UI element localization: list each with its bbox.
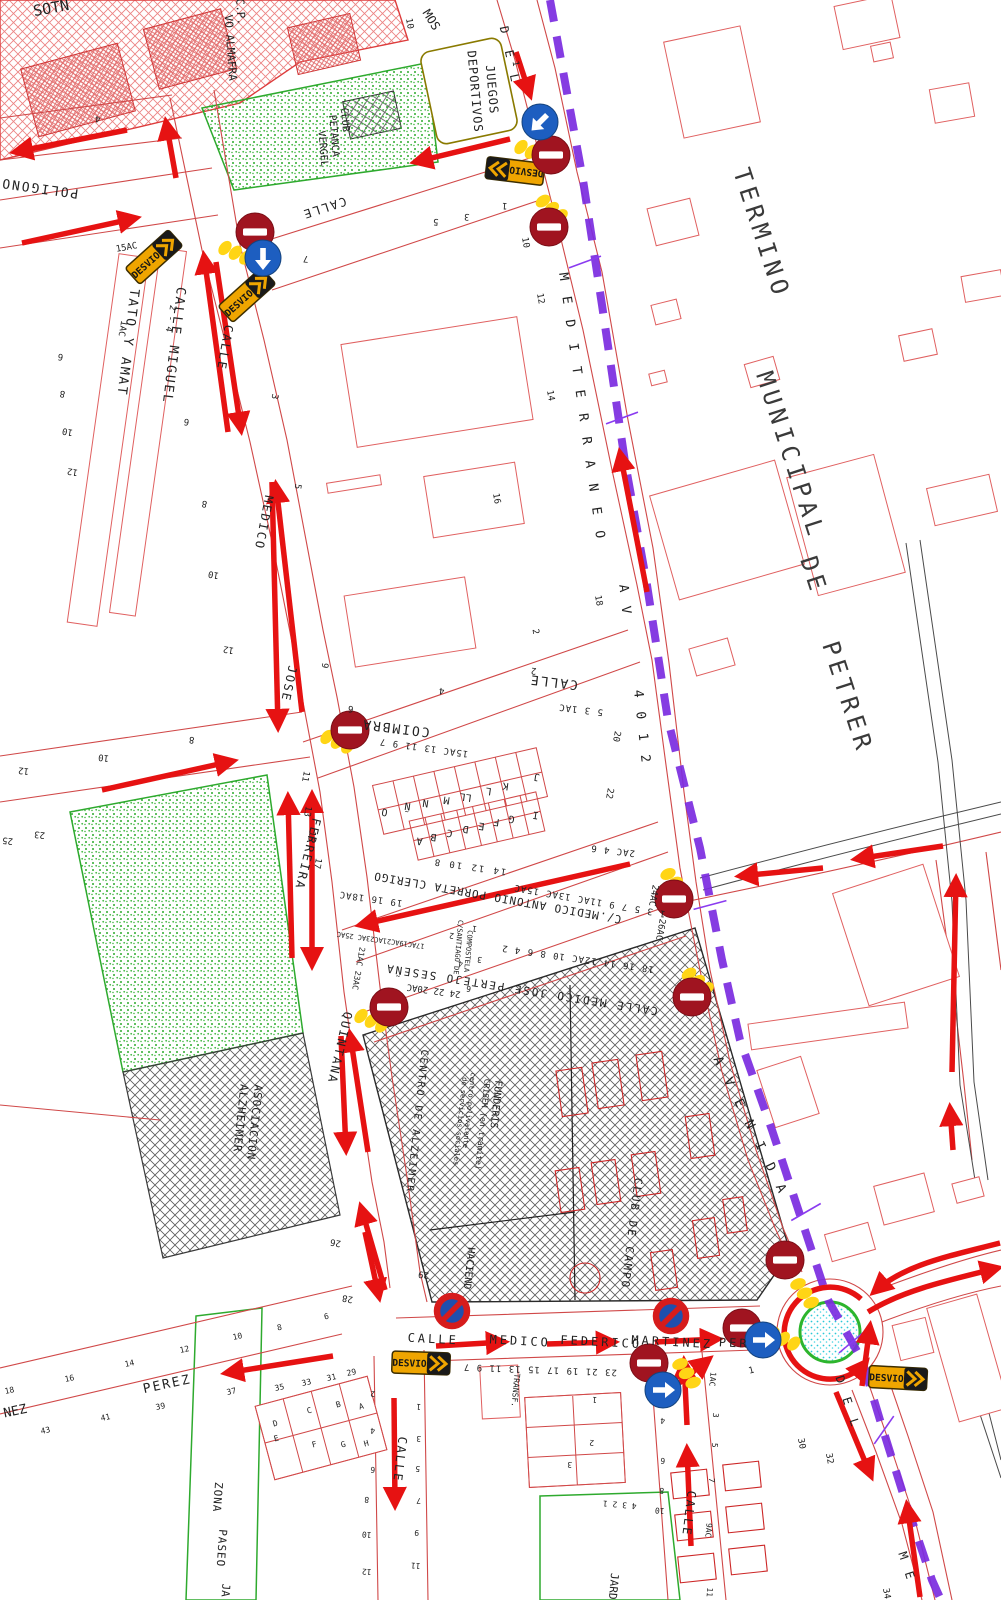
map-label: CALLE — [679, 1490, 699, 1537]
map-label: 12 — [222, 643, 234, 655]
direction-arrow — [350, 1034, 368, 1152]
map-label: 3 — [416, 1434, 422, 1443]
map-label: 10 — [361, 1530, 372, 1540]
map-label: 2 — [530, 628, 541, 635]
map-label: 6 — [660, 1456, 666, 1465]
map-label: 11 — [410, 1561, 421, 1571]
building-outline — [927, 474, 998, 525]
map-label: Ñ — [404, 800, 412, 814]
map-label: 6 — [347, 703, 354, 714]
map-label: 5 — [415, 1464, 421, 1473]
map-label: PER — [719, 1335, 750, 1351]
map-label: 13 — [301, 805, 313, 817]
map-label: 2 — [448, 931, 454, 941]
map-label: 5 3 1AC — [558, 701, 604, 716]
map-label: 3 — [464, 211, 470, 221]
building-outline — [689, 638, 735, 676]
map-label: 12 — [18, 764, 30, 775]
map-label: A V — [615, 584, 633, 618]
building-outline — [341, 317, 533, 448]
no-entry-sign — [673, 978, 711, 1016]
map-label: 9 — [414, 1528, 420, 1537]
map-label: 2 — [530, 665, 537, 676]
map-label: C — [446, 827, 454, 839]
building-outline — [424, 462, 525, 538]
map-label: FEDERICO — [560, 1333, 642, 1351]
map-label: FERREIRA — [292, 816, 323, 891]
map-label: D — [462, 823, 470, 835]
map-label: 1AC — [707, 1372, 717, 1387]
map-label: 9AC — [703, 1523, 713, 1538]
sports-court — [723, 1461, 762, 1491]
map-label: 2AC 4 6 — [590, 842, 636, 857]
map-label: 16 — [490, 492, 502, 504]
map-label: A — [416, 835, 424, 847]
map-label: MOS — [420, 7, 443, 33]
map-label: 20 — [610, 730, 622, 742]
map-label: 12 — [66, 465, 78, 477]
map-label: 6 — [370, 1465, 376, 1474]
building-outline — [874, 1173, 935, 1225]
map-label: 25 — [2, 834, 14, 845]
map-label: TERMINO — [727, 164, 796, 302]
map-label: 39 — [155, 1401, 166, 1412]
map-label: 18 — [592, 594, 604, 606]
map-label: 10 — [98, 751, 110, 762]
map-label: 1 — [592, 1395, 598, 1404]
map-label: 1 — [502, 200, 508, 210]
map-label: 1 — [748, 1366, 756, 1377]
map-label: 3 — [476, 955, 482, 965]
route-tick — [694, 901, 727, 910]
building-outline — [927, 1294, 1001, 1422]
map-label: I — [532, 809, 540, 821]
building-outline — [929, 83, 974, 123]
map-label: CALLE — [407, 1331, 459, 1348]
map-label: 8 — [364, 1495, 370, 1504]
map-label: 6 — [183, 416, 190, 427]
detour-plan-map[interactable]: DESVIO — [0, 0, 1001, 1600]
map-label: O — [381, 806, 389, 818]
map-label: 6 — [323, 1312, 330, 1322]
no-entry-sign — [532, 136, 570, 174]
map-label: 32 — [823, 1452, 835, 1464]
map-label: 30 — [795, 1437, 807, 1449]
building-outline — [647, 198, 699, 246]
map-label: 7 — [303, 253, 309, 263]
map-label: 10 — [519, 236, 531, 248]
map-label: L — [485, 785, 493, 797]
direction-arrow — [166, 122, 176, 178]
no-parking-sign — [656, 1301, 686, 1331]
park-green-area — [70, 775, 303, 1072]
map-label: 3 — [567, 1460, 573, 1469]
map-label: 11 — [299, 770, 311, 782]
map-label: 5 — [292, 483, 303, 490]
map-label: 28 — [341, 1292, 353, 1304]
map-label: 10 — [207, 568, 219, 580]
map-label: M — [443, 794, 451, 806]
map-label: 31 — [326, 1372, 337, 1383]
map-label: J — [533, 771, 541, 783]
map-label: 6 — [57, 351, 64, 362]
detour-sign — [392, 1351, 451, 1375]
detour-route-layer — [550, 0, 941, 1600]
map-label: N — [422, 797, 430, 809]
map-label: 2 — [370, 1389, 376, 1398]
map-label: 4 — [660, 1416, 666, 1425]
map-label: 29 — [346, 1367, 357, 1378]
sports-court — [678, 1553, 717, 1583]
map-label: 7 — [416, 1496, 422, 1505]
map-label: 33 — [301, 1377, 312, 1388]
map-label: PEREZ — [142, 1372, 193, 1397]
map-label: JARD — [606, 1573, 621, 1600]
map-label: 5 — [433, 216, 439, 226]
detour-route-line — [550, 0, 941, 1600]
mandatory-direction-sign — [645, 1372, 681, 1408]
map-label: 3 — [269, 393, 280, 400]
map-label: MEDICO — [489, 1332, 551, 1349]
map-label: 10 — [403, 17, 415, 29]
building-outline — [651, 299, 681, 325]
map-label: 34 — [880, 1587, 892, 1599]
map-label: 16 — [64, 1373, 75, 1384]
map-canvas: DESVIO — [0, 0, 1001, 1600]
map-label: 12 — [534, 292, 546, 304]
map-label: D E L — [832, 1374, 863, 1432]
map-label: 8 — [59, 388, 66, 399]
map-label: 18 — [4, 1385, 15, 1396]
map-label: 8 — [188, 734, 195, 745]
building-outline — [871, 42, 894, 62]
map-label: 43 — [40, 1425, 51, 1436]
direction-arrow — [950, 1108, 953, 1150]
map-label: CLUB — [338, 107, 351, 132]
map-label: 26 — [329, 1236, 341, 1248]
building-outline — [650, 460, 805, 600]
map-label: 41 — [100, 1412, 111, 1423]
building-outline — [664, 26, 761, 138]
map-label: F — [493, 816, 501, 828]
building-outline — [961, 270, 1001, 303]
map-label: 2 — [589, 1438, 595, 1447]
map-label: 1 — [471, 924, 477, 934]
map-label: 14 — [124, 1358, 135, 1369]
no-entry-sign — [370, 988, 408, 1026]
map-label: COIMBRA — [361, 716, 431, 739]
building-outline — [344, 577, 476, 667]
map-label: 4 — [370, 1426, 376, 1435]
map-label: E — [478, 820, 486, 832]
building-outline — [892, 1317, 934, 1360]
map-label: 12 — [361, 1567, 372, 1577]
map-label: B — [430, 831, 438, 843]
building-outline — [952, 1177, 984, 1204]
map-label: 3 — [711, 1412, 720, 1418]
map-label: 4 — [95, 113, 101, 123]
no-entry-sign — [766, 1241, 804, 1279]
map-label: 29 — [418, 1268, 430, 1279]
map-label: POLIGONO — [0, 175, 79, 201]
map-label: LL — [459, 790, 472, 803]
no-entry-sign — [530, 208, 568, 246]
map-label: 8 — [659, 1486, 665, 1495]
map-label: G — [508, 813, 516, 825]
map-label: 14 12 10 8 — [432, 856, 507, 876]
map-label: 21AC 23AC — [350, 946, 366, 990]
map-label: 1 — [416, 1402, 422, 1411]
building-outline — [757, 1056, 819, 1127]
map-label: 5 — [710, 1442, 719, 1448]
direction-arrow — [856, 846, 943, 859]
map-label: 4 — [438, 685, 445, 696]
map-label: 12 — [179, 1344, 190, 1355]
building-outline — [833, 864, 960, 1006]
map-label: 9 — [319, 662, 330, 669]
map-label: PASEO — [214, 1529, 230, 1568]
map-label: 15 — [305, 830, 317, 842]
map-label: 15AC — [115, 241, 138, 255]
map-label: 10 — [61, 425, 73, 437]
map-label: 7 — [707, 1477, 716, 1483]
map-label: 14 — [544, 389, 556, 401]
map-label: 17 — [311, 857, 323, 869]
map-label: JA — [219, 1583, 233, 1597]
no-parking-sign — [437, 1296, 467, 1326]
building-outline — [327, 475, 382, 493]
map-label: 35 — [274, 1382, 285, 1393]
mandatory-direction-sign — [245, 240, 281, 276]
sports-court — [729, 1545, 768, 1575]
building-outline — [825, 1222, 876, 1261]
map-label: NEZ — [2, 1402, 28, 1422]
map-label: ZONA — [210, 1482, 225, 1513]
map-label: 17AC19AC21AC23AC 25AC — [336, 930, 425, 950]
map-label: 23 — [34, 828, 46, 839]
map-label: 8 — [276, 1323, 283, 1333]
map-label: 22 — [603, 787, 615, 799]
mandatory-direction-sign — [745, 1322, 781, 1358]
sports-court — [726, 1503, 765, 1533]
building-outline — [899, 329, 938, 362]
building-outline — [649, 370, 667, 386]
map-label: JOSE — [278, 664, 299, 703]
map-label: 8 — [201, 498, 208, 509]
map-label: 4 0 1 2 — [630, 689, 653, 766]
map-label: 10 — [654, 1506, 665, 1516]
building-outline — [748, 1002, 908, 1050]
map-label: PETRER — [816, 638, 879, 758]
map-label: 11 — [705, 1587, 715, 1598]
detour-sign — [868, 1365, 927, 1390]
